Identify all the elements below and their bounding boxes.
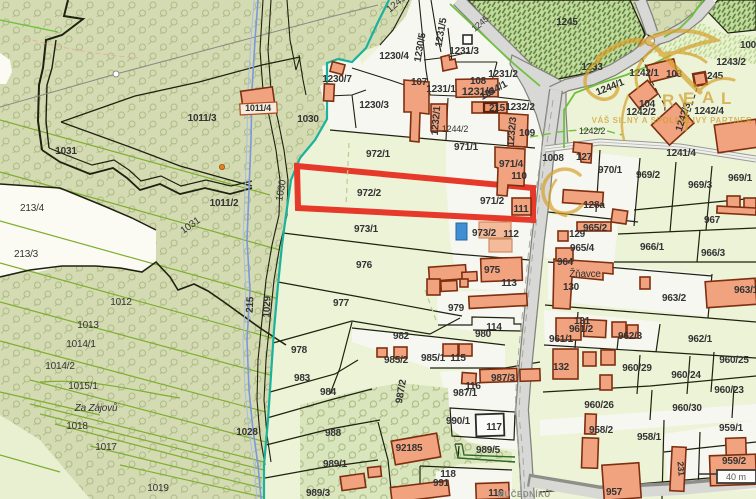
svg-text:983: 983 <box>294 373 311 384</box>
svg-text:971/1: 971/1 <box>454 142 479 153</box>
svg-text:966/3: 966/3 <box>701 248 726 259</box>
svg-text:962/3: 962/3 <box>618 331 643 342</box>
svg-text:989/1: 989/1 <box>323 459 348 470</box>
svg-text:982: 982 <box>393 331 410 342</box>
svg-text:231: 231 <box>675 461 686 476</box>
svg-text:970/1: 970/1 <box>598 165 623 176</box>
svg-text:965/4: 965/4 <box>570 243 595 254</box>
svg-text:117: 117 <box>486 422 502 433</box>
svg-text:963/1: 963/1 <box>734 285 756 296</box>
svg-text:1011/4: 1011/4 <box>245 103 271 113</box>
svg-text:966/1: 966/1 <box>640 242 665 253</box>
svg-text:1244/2: 1244/2 <box>442 124 469 134</box>
svg-text:Žňavce: Žňavce <box>569 267 601 280</box>
svg-text:973/1: 973/1 <box>354 224 379 235</box>
svg-text:1231/3: 1231/3 <box>449 46 479 57</box>
svg-text:960/24: 960/24 <box>671 370 701 381</box>
svg-text:110: 110 <box>511 171 527 182</box>
svg-text:973/2: 973/2 <box>472 228 497 239</box>
svg-text:1030: 1030 <box>297 114 319 125</box>
svg-text:1230/3: 1230/3 <box>359 100 389 111</box>
svg-text:960/23: 960/23 <box>714 385 744 396</box>
svg-text:1231/1: 1231/1 <box>426 84 456 95</box>
svg-text:990/1: 990/1 <box>446 416 471 427</box>
svg-text:1230/7: 1230/7 <box>322 74 352 85</box>
svg-text:989/3: 989/3 <box>306 488 331 499</box>
svg-text:109: 109 <box>519 128 536 139</box>
svg-text:100: 100 <box>740 40 756 51</box>
svg-text:977: 977 <box>333 298 350 309</box>
svg-text:112: 112 <box>503 229 519 240</box>
svg-text:107: 107 <box>411 77 428 88</box>
svg-text:113: 113 <box>501 278 517 289</box>
svg-text:215: 215 <box>489 103 506 114</box>
svg-text:960/26: 960/26 <box>584 400 614 411</box>
svg-text:116: 116 <box>465 381 481 392</box>
svg-text:978: 978 <box>291 345 308 356</box>
svg-text:971/4: 971/4 <box>499 159 524 170</box>
svg-text:957: 957 <box>606 487 623 498</box>
svg-text:1011/2: 1011/2 <box>210 198 239 209</box>
svg-text:969/2: 969/2 <box>636 170 661 181</box>
svg-text:969/1: 969/1 <box>728 173 753 184</box>
svg-text:1013: 1013 <box>77 320 99 331</box>
svg-text:1029: 1029 <box>261 295 273 318</box>
svg-text:980: 980 <box>475 329 492 340</box>
svg-text:213/4: 213/4 <box>20 203 45 214</box>
svg-text:969/3: 969/3 <box>688 180 713 191</box>
svg-text:1015/1: 1015/1 <box>68 381 98 392</box>
svg-text:1028: 1028 <box>236 427 258 438</box>
svg-text:1232/2: 1232/2 <box>505 102 535 113</box>
svg-text:A: A <box>702 88 714 107</box>
svg-text:979: 979 <box>448 303 465 314</box>
svg-text:1012: 1012 <box>110 297 132 308</box>
svg-text:213/3: 213/3 <box>14 249 39 260</box>
svg-text:127: 127 <box>576 152 593 163</box>
svg-text:971/2: 971/2 <box>480 196 505 207</box>
svg-text:960/30: 960/30 <box>672 403 702 414</box>
svg-text:111: 111 <box>514 204 530 215</box>
svg-text:972/1: 972/1 <box>366 149 391 160</box>
svg-text:1014/2: 1014/2 <box>45 361 75 372</box>
svg-text:991: 991 <box>433 478 450 489</box>
svg-text:1019: 1019 <box>147 483 169 494</box>
svg-text:962/1: 962/1 <box>688 334 713 345</box>
svg-text:985/2: 985/2 <box>384 355 409 366</box>
svg-text:215: 215 <box>245 296 257 313</box>
svg-text:MUČEDNÍKŮ: MUČEDNÍKŮ <box>497 489 550 499</box>
svg-text:958/2: 958/2 <box>589 425 614 436</box>
svg-text:959/1: 959/1 <box>719 423 744 434</box>
svg-text:988: 988 <box>325 428 342 439</box>
svg-text:961/1: 961/1 <box>549 334 574 345</box>
svg-text:1242/1: 1242/1 <box>629 68 659 79</box>
svg-text:L: L <box>721 89 731 108</box>
svg-text:985/1: 985/1 <box>421 353 446 364</box>
svg-text:1031: 1031 <box>55 146 77 157</box>
svg-text:960/25: 960/25 <box>719 355 749 366</box>
svg-text:132: 132 <box>553 362 570 373</box>
svg-text:128a: 128a <box>583 200 605 211</box>
svg-text:1243/2: 1243/2 <box>716 57 746 68</box>
svg-text:967: 967 <box>704 215 721 226</box>
svg-text:959/2: 959/2 <box>722 456 747 467</box>
svg-text:1008: 1008 <box>542 153 564 164</box>
svg-text:E: E <box>683 89 694 108</box>
svg-text:1017: 1017 <box>95 442 117 453</box>
svg-text:1241/4: 1241/4 <box>666 148 696 159</box>
svg-text:1245: 1245 <box>556 17 578 28</box>
svg-text:976: 976 <box>356 260 373 271</box>
svg-text:989/5: 989/5 <box>476 445 501 456</box>
svg-text:960/29: 960/29 <box>622 363 652 374</box>
svg-text:964: 964 <box>557 257 574 268</box>
svg-text:1242/2: 1242/2 <box>579 126 606 136</box>
svg-text:958/1: 958/1 <box>637 432 662 443</box>
svg-text:VÁŠ SILNÝ A SPOLEHLIVÝ PARTNER: VÁŠ SILNÝ A SPOLEHLIVÝ PARTNER <box>592 116 753 125</box>
svg-text:92185: 92185 <box>396 443 423 454</box>
svg-text:965/2: 965/2 <box>583 223 608 234</box>
svg-text:1014/1: 1014/1 <box>66 339 96 350</box>
svg-text:972/2: 972/2 <box>357 188 382 199</box>
svg-text:40 m: 40 m <box>726 472 746 482</box>
svg-text:115: 115 <box>450 353 466 364</box>
svg-text:984: 984 <box>320 387 337 398</box>
svg-text:1018: 1018 <box>66 421 88 432</box>
svg-text:963/2: 963/2 <box>662 293 687 304</box>
svg-text:1230/4: 1230/4 <box>379 51 409 62</box>
svg-text:975: 975 <box>484 265 501 276</box>
svg-text:R: R <box>662 91 674 110</box>
svg-text:987/3: 987/3 <box>491 373 516 384</box>
svg-text:130: 130 <box>563 282 580 293</box>
svg-text:1011/3: 1011/3 <box>188 113 217 124</box>
svg-text:Za Zájovů: Za Zájovů <box>74 402 118 414</box>
